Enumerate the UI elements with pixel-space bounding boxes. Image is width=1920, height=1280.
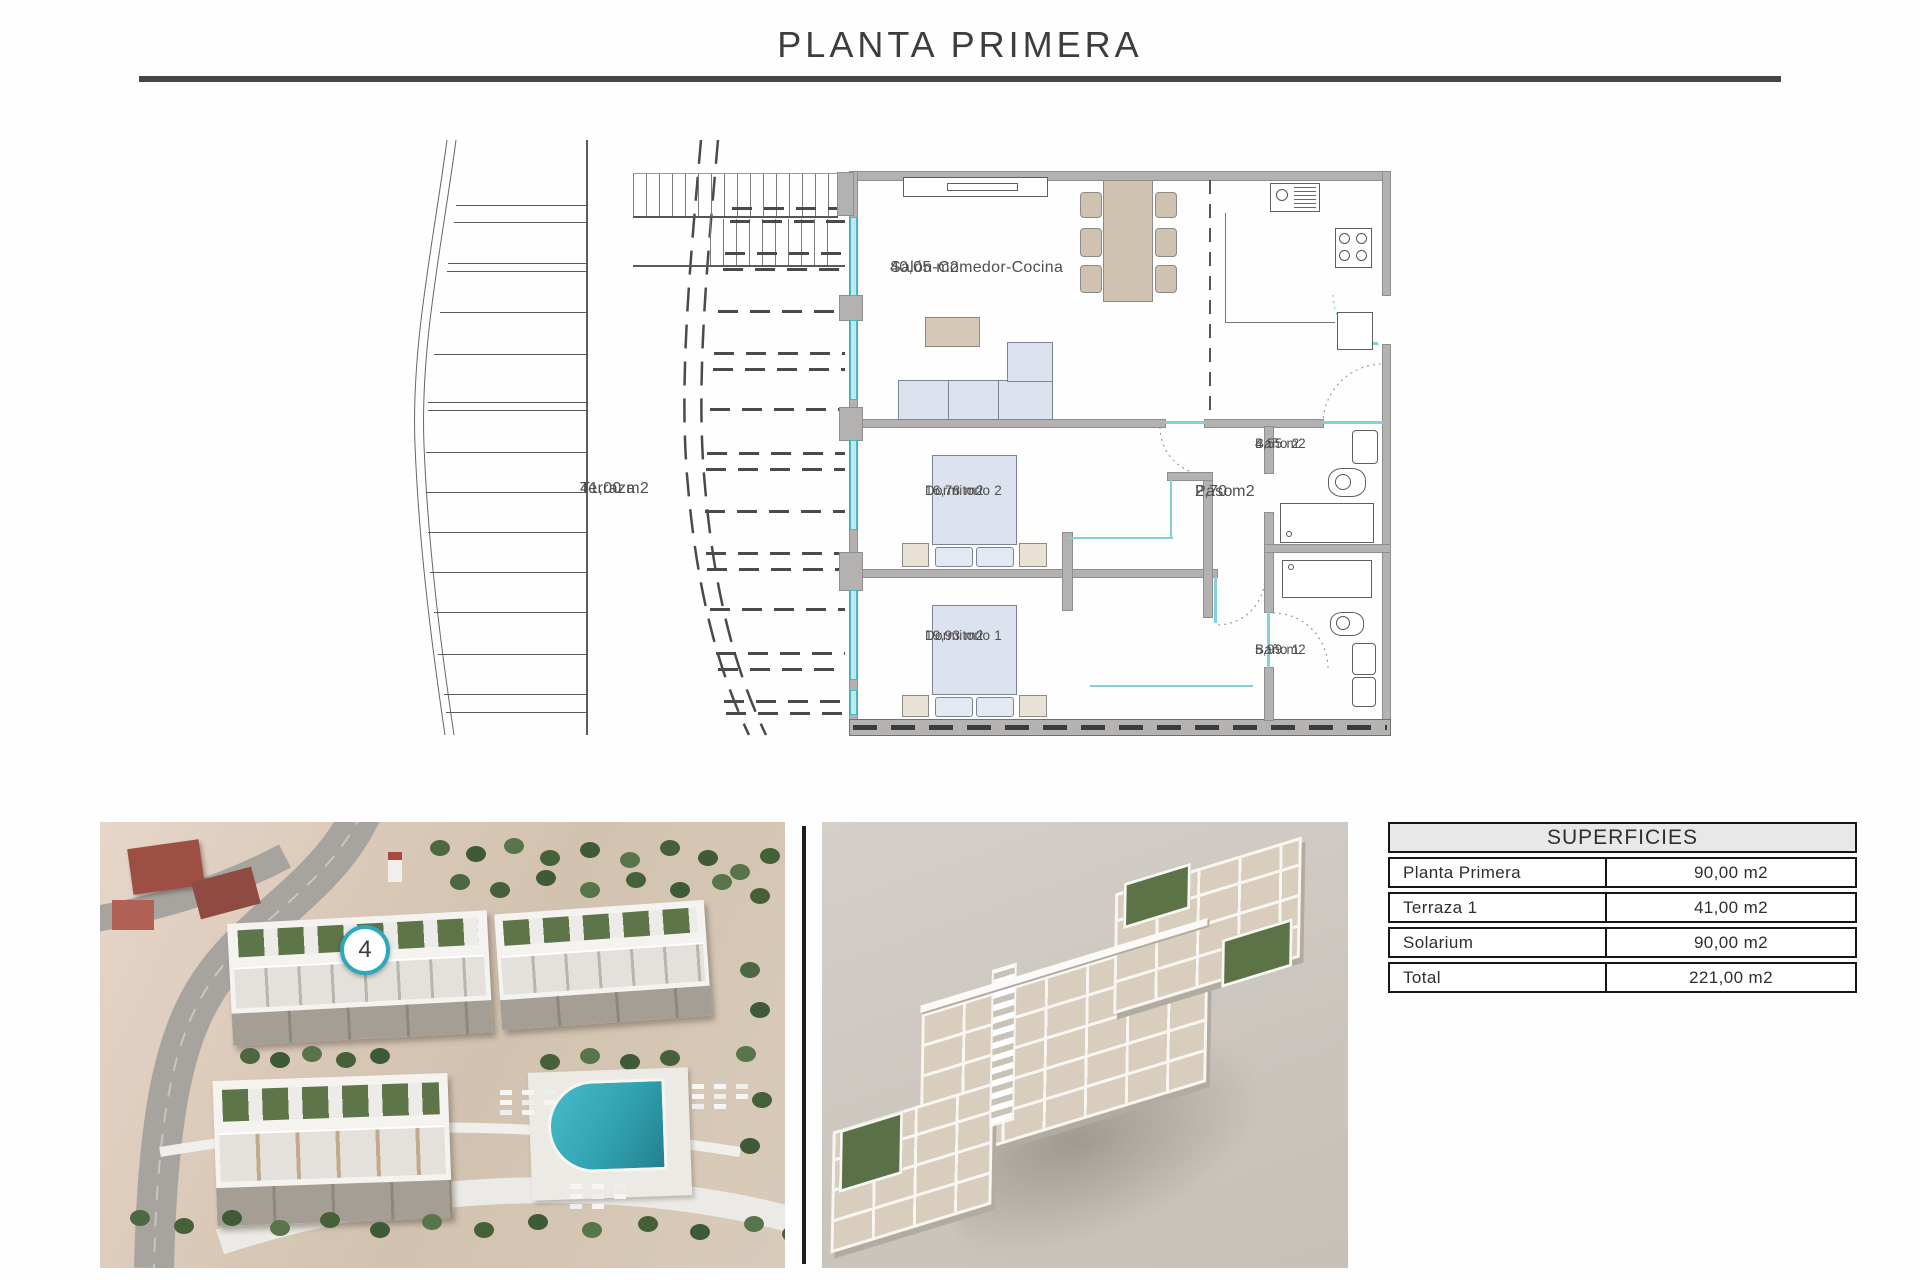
terrace-boundary-lines	[350, 135, 1395, 740]
sink-rack	[1294, 187, 1316, 208]
table-row: Terraza 1 41,00 m2	[1388, 892, 1857, 923]
sofa-seat	[898, 380, 1053, 420]
wardrobe-line	[1090, 685, 1253, 687]
terrace-line	[430, 572, 586, 573]
terrace-line	[438, 654, 586, 655]
row-label: Total	[1390, 964, 1607, 991]
wall-dorm2-dorm1	[857, 570, 1217, 577]
sink-bowl	[1276, 189, 1288, 201]
row-value: 41,00 m2	[1607, 894, 1855, 921]
terrace-line	[434, 612, 586, 613]
wall-stub	[840, 296, 862, 320]
deck-dash	[726, 712, 845, 715]
door-leaf	[1323, 421, 1383, 424]
row-label: Terraza 1	[1390, 894, 1607, 921]
deck-dash	[714, 352, 845, 355]
deck-dash	[705, 510, 845, 513]
page-title: PLANTA PRIMERA	[0, 24, 1920, 66]
counter-edge	[1225, 322, 1335, 323]
terrace-line	[448, 263, 586, 264]
deck-dash	[718, 310, 845, 313]
pillow	[976, 547, 1014, 567]
pillow	[935, 547, 973, 567]
building-facade	[219, 1125, 446, 1182]
floor-plan-sheet: PLANTA PRIMERA	[0, 0, 1920, 1280]
unit-number-badge: 4	[340, 925, 390, 975]
surfaces-table: SUPERFICIES Planta Primera 90,00 m2 Terr…	[1388, 822, 1857, 993]
terrace-line	[428, 532, 586, 533]
deck-dash	[710, 608, 845, 611]
nightstand	[902, 695, 929, 717]
nightstand	[1019, 695, 1047, 717]
deck-dash	[706, 468, 845, 471]
surfaces-table-title: SUPERFICIES	[1388, 822, 1857, 853]
nightstand	[1019, 543, 1047, 567]
counter-edge	[1225, 213, 1226, 322]
stairs-hatch	[633, 173, 838, 218]
window	[850, 320, 857, 400]
building-block-upper-right	[494, 900, 712, 1030]
drain	[1288, 564, 1294, 570]
chair	[1080, 265, 1102, 293]
window	[850, 440, 857, 530]
sun-loungers	[692, 1084, 704, 1089]
toilet-bowl	[1335, 474, 1351, 490]
burner	[1356, 233, 1367, 244]
terrace-line	[434, 354, 586, 355]
tv	[947, 183, 1018, 191]
sun-loungers	[500, 1090, 512, 1095]
deck-dash	[713, 368, 845, 371]
pillow	[935, 697, 973, 717]
chair	[1080, 192, 1102, 218]
isometric-3d-render	[822, 822, 1348, 1268]
wall-salon-dorm2	[1205, 420, 1323, 427]
deck-dash	[707, 568, 845, 571]
landmark-tower	[388, 852, 402, 882]
terrace-line	[440, 312, 586, 313]
bed-dorm1	[932, 605, 1017, 695]
shower-tray	[1280, 503, 1374, 543]
washbasin	[1352, 430, 1378, 464]
terrace-line	[428, 410, 586, 411]
deck-dash	[716, 652, 845, 655]
burner	[1356, 250, 1367, 261]
drain	[1286, 531, 1292, 537]
chair	[1155, 228, 1177, 257]
terrace-edge-line	[586, 140, 588, 735]
window	[850, 690, 857, 715]
window	[850, 590, 857, 680]
unit-number: 4	[358, 936, 371, 964]
wall-bottom-party	[850, 720, 1390, 735]
washbasin	[1352, 643, 1376, 675]
row-label: Solarium	[1390, 929, 1607, 956]
wall-stub	[840, 408, 862, 440]
sofa-chaise	[1007, 342, 1053, 382]
row-value: 221,00 m2	[1607, 964, 1855, 991]
fridge	[1337, 312, 1373, 350]
stairs-line	[633, 265, 845, 267]
roof-garden	[222, 1082, 439, 1121]
deck-dash	[723, 268, 845, 271]
deck-dash	[718, 668, 845, 671]
wardrobe-line	[1170, 480, 1172, 539]
building-block-lower	[213, 1073, 453, 1226]
tree-cluster	[430, 840, 450, 856]
wardrobe-line	[1067, 537, 1173, 539]
terrace-line	[454, 222, 586, 223]
image-divider-line	[802, 826, 806, 1264]
floor-plan-drawing: Terraza 41,00 m2 Salón-Comedor-Cocina 40…	[350, 135, 1395, 740]
burner	[1339, 233, 1350, 244]
pool	[546, 1078, 667, 1174]
roof-garden	[503, 907, 697, 946]
wall-paso	[1265, 513, 1273, 612]
nightstand	[902, 543, 929, 567]
shower-tray	[1282, 560, 1372, 598]
bidet	[1352, 677, 1376, 707]
tree-hedge	[240, 1048, 260, 1064]
door-leaf	[1165, 421, 1205, 424]
wall-salon-dorm2	[857, 420, 1165, 427]
deck-dash	[732, 207, 845, 210]
deck-dash	[707, 452, 845, 455]
tree-column-right	[740, 962, 760, 978]
sofa-cushion-line	[948, 381, 949, 419]
sun-loungers	[570, 1184, 582, 1189]
deck-dash	[725, 252, 845, 255]
pillow	[976, 697, 1014, 717]
terrace-line	[426, 492, 586, 493]
red-roof-building	[112, 900, 154, 930]
row-label: Planta Primera	[1390, 859, 1607, 886]
terrace-line	[428, 402, 586, 403]
table-row: Total 221,00 m2	[1388, 962, 1857, 993]
terrace-line	[456, 205, 586, 206]
coffee-table	[925, 317, 980, 347]
dining-table	[1103, 180, 1153, 302]
wall-right	[1383, 345, 1390, 720]
table-row: Solarium 90,00 m2	[1388, 927, 1857, 958]
tree-cluster	[450, 874, 470, 890]
wall-stub	[838, 173, 853, 215]
chair	[1080, 228, 1102, 257]
table-row: Planta Primera 90,00 m2	[1388, 857, 1857, 888]
terrace-line	[426, 452, 586, 453]
door-leaf	[1214, 577, 1217, 623]
wall-corridor	[1063, 533, 1072, 610]
sofa-cushion-line	[998, 381, 999, 419]
kitchen-partition-dashed	[1209, 180, 1211, 420]
wall-stub	[840, 553, 862, 590]
chair	[1155, 265, 1177, 293]
deck-dash	[710, 408, 845, 411]
window	[850, 217, 857, 296]
terrace-line	[444, 694, 586, 695]
chair	[1155, 192, 1177, 218]
aerial-site-photo: 4	[100, 822, 785, 1268]
title-divider	[139, 76, 1781, 82]
deck-dash	[706, 552, 845, 555]
wall-right	[1383, 172, 1390, 295]
stairs-hatch	[710, 219, 838, 265]
terrace-line	[446, 712, 586, 713]
wall-paso	[1265, 668, 1273, 720]
toilet-bowl	[1336, 616, 1350, 630]
terrace-line	[447, 271, 586, 272]
deck-dash	[724, 700, 845, 703]
wall-closet	[1168, 473, 1212, 480]
tree-row-bottom	[130, 1210, 150, 1226]
burner	[1339, 250, 1350, 261]
wall-banos-separator	[1265, 545, 1390, 552]
row-value: 90,00 m2	[1607, 929, 1855, 956]
deck-dash	[730, 220, 845, 223]
row-value: 90,00 m2	[1607, 859, 1855, 886]
